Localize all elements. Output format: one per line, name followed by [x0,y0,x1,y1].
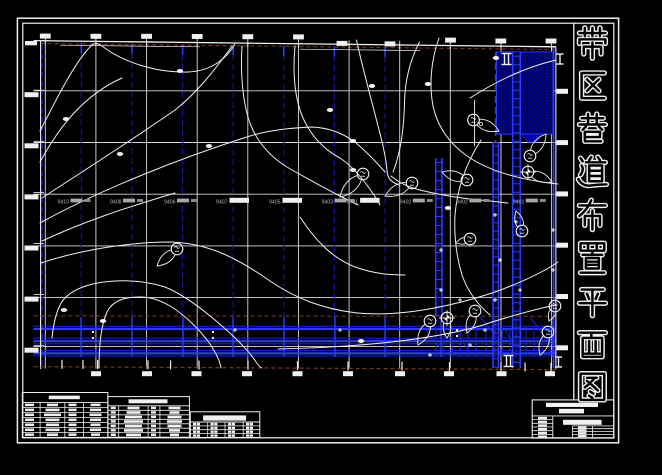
svg-text:9401: 9401 [347,199,359,205]
svg-text:9402: 9402 [456,199,468,205]
svg-text:9408: 9408 [110,199,122,205]
svg-text:9410: 9410 [58,199,70,205]
svg-text:9405: 9405 [269,199,281,205]
svg-text:9401: 9401 [513,199,525,205]
svg-text:9403: 9403 [322,199,334,205]
svg-text:9406: 9406 [164,199,176,205]
svg-text:9402: 9402 [400,199,412,205]
svg-text:9407: 9407 [216,199,228,205]
